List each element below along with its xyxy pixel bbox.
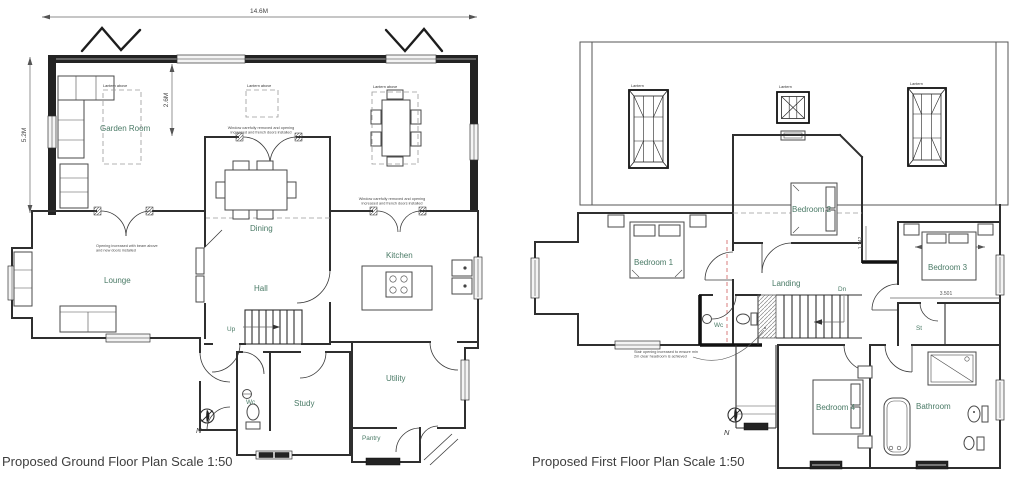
lantern-above-outline [246, 90, 278, 117]
bedroom-1: Bedroom 1 [531, 213, 733, 349]
shower [928, 352, 976, 385]
room-label-utility: Utility [386, 374, 406, 383]
room-label-pantry: Pantry [362, 435, 381, 442]
stairs-up-label: Up [227, 326, 236, 333]
room-label-store: St [916, 325, 922, 332]
dimension-overall-width: 14.6M [250, 8, 268, 15]
garden-room-sofa [58, 76, 114, 208]
room-label-dining: Dining [250, 224, 273, 233]
lantern-label: Lantern [910, 82, 923, 86]
first-floor-title: Proposed First Floor Plan Scale 1:50 [532, 454, 744, 469]
lantern-skylight-middle: Lantern [777, 85, 809, 140]
ground-floor-title: Proposed Ground Floor Plan Scale 1:50 [2, 454, 233, 469]
roof-break-symbols [82, 28, 442, 51]
dimension-bedroom3-depth: 3.501 [940, 291, 953, 297]
floor-plan-drawing: 14.6M 5.2M 2.6M [0, 0, 1024, 493]
room-label-landing: Landing [772, 279, 800, 288]
annotation-kitchen-doors: Window carefully removed and openingincr… [359, 197, 425, 206]
lantern-skylight-left: Lantern [629, 84, 668, 168]
plans-canvas: 14.6M 5.2M 2.6M [0, 0, 1024, 493]
staircase-down: Dn [776, 286, 862, 338]
room-label-bedroom-4: Bedroom 4 [816, 403, 856, 412]
ground-floor-plan: 14.6M 5.2M 2.6M [2, 8, 482, 469]
dimension-garden-room-depth: 2.6M [163, 93, 170, 107]
lounge-sofas [14, 252, 116, 332]
dining-table [216, 161, 296, 219]
kitchen-island [362, 266, 432, 310]
staircase-up: Up [227, 310, 302, 344]
lantern-skylight-right: Lantern [908, 82, 946, 166]
room-label-garden-room: Garden Room [100, 124, 151, 133]
room-label-study: Study [294, 399, 314, 408]
lantern-above-label: Lantern above [373, 85, 397, 89]
wc-fixtures [703, 313, 758, 325]
wc-fixtures [243, 390, 261, 430]
dimension-landing-width: 1.342 [858, 237, 864, 250]
dimension-overall-depth: 5.2M [21, 128, 28, 142]
bedroom-2: Bedroom 2 [733, 135, 862, 273]
stairs-down-label: Dn [838, 286, 847, 293]
lantern-above-label: Lantern above [247, 84, 271, 88]
room-label-wc-ground: Wc [246, 399, 256, 406]
lantern-label: Lantern [779, 85, 792, 89]
hall: Up Hall [205, 284, 330, 372]
breakfast-table [371, 90, 421, 166]
north-arrow-icon: N [196, 409, 214, 435]
annotation-lounge-opening: Opening increased with beam aboveand new… [96, 244, 158, 253]
north-label-first: N [724, 428, 730, 437]
room-label-bedroom-3: Bedroom 3 [928, 263, 968, 272]
annotation-stair-opening: Stair opening increased to ensure min2m … [634, 350, 698, 359]
room-label-wc-first: Wc [714, 322, 724, 329]
bathtub [884, 398, 910, 455]
basin [968, 406, 988, 422]
room-label-bedroom-1: Bedroom 1 [634, 258, 674, 267]
dining-room: Lantern above Window carefully removed a… [205, 84, 330, 342]
bedroom-3: 4.630 3.501 1.342 Bedroom 3 St [858, 205, 1004, 345]
stair-opening-hatch [758, 295, 776, 338]
annotation-dining-doors: Window carefully removed and openingincr… [228, 126, 294, 135]
room-label-hall: Hall [254, 284, 268, 293]
north-label-ground: N [196, 426, 202, 435]
room-label-bathroom: Bathroom [916, 402, 951, 411]
bed-double [608, 215, 706, 278]
toilet [964, 437, 984, 451]
north-arrow-icon: N [724, 408, 742, 437]
room-label-bedroom-2: Bedroom 2 [792, 205, 832, 214]
ground-bottom-rooms: Wc Study Utility Pantry [200, 338, 478, 465]
landing: Landing Wc [700, 240, 898, 430]
room-label-lounge: Lounge [104, 276, 131, 285]
first-floor-plan: Lantern Lantern [531, 42, 1008, 469]
kitchen-sink [452, 260, 472, 294]
bathroom: Bathroom [884, 352, 988, 455]
lantern-label: Lantern [631, 84, 644, 88]
lantern-above-label: Lantern above [103, 84, 127, 88]
lounge: Opening increased with beam aboveand new… [8, 211, 222, 342]
room-label-kitchen: Kitchen [386, 251, 413, 260]
